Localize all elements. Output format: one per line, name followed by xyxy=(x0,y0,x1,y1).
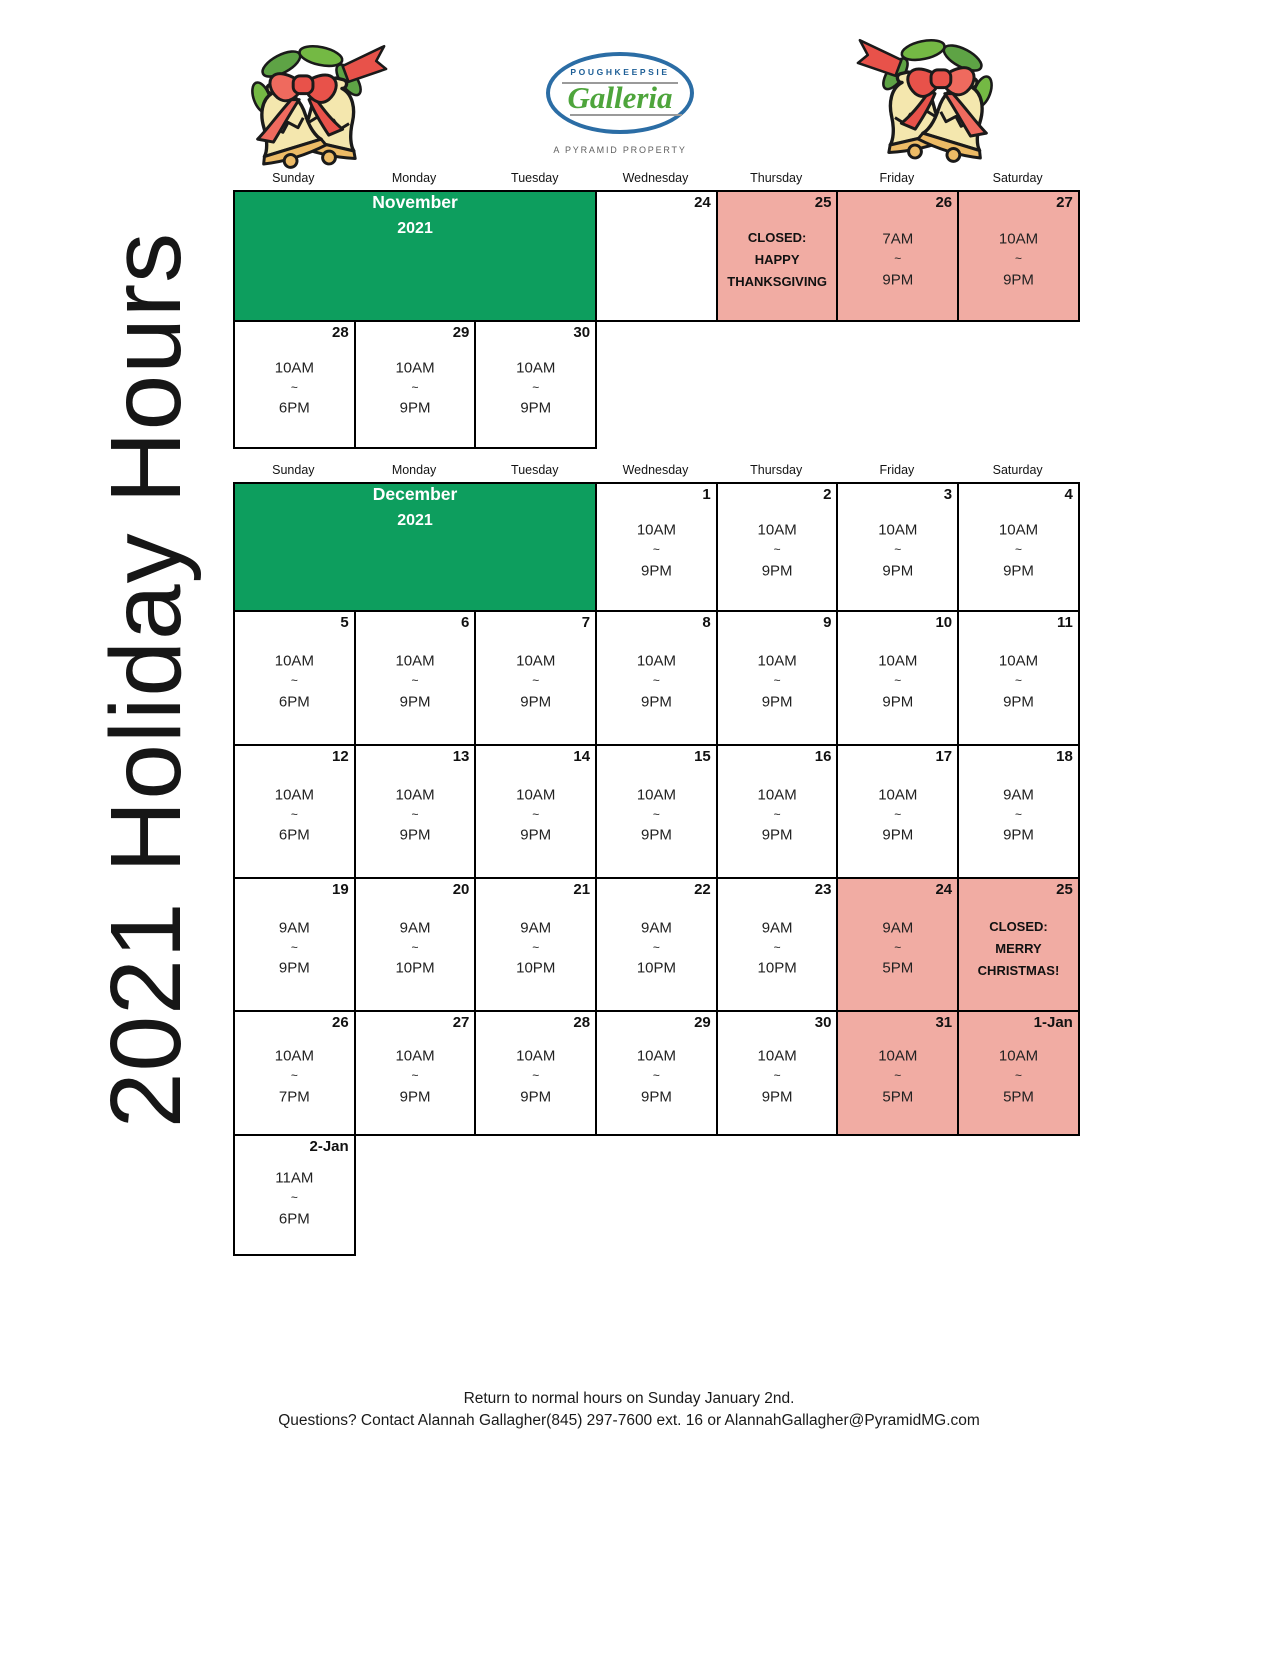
date-number: 21 xyxy=(573,881,590,898)
hours-separator: ~ xyxy=(894,1072,901,1082)
hours-line: 9PM xyxy=(400,828,431,843)
logo-poughkeepsie-text: POUGHKEEPSIE xyxy=(550,67,690,77)
date-number: 20 xyxy=(453,881,470,898)
hours-line: 10AM xyxy=(275,787,314,802)
hours-line: 9PM xyxy=(762,1089,793,1104)
hours-separator: ~ xyxy=(1015,810,1022,820)
hours-line: 10AM xyxy=(637,787,676,802)
hours-separator: ~ xyxy=(1015,546,1022,556)
hours-line: 10AM xyxy=(878,1049,917,1064)
hours-line: 10AM xyxy=(999,523,1038,538)
date-number: 16 xyxy=(815,748,832,765)
holiday-hours-flyer: 2021 Holiday Hours xyxy=(0,0,1280,1655)
hours-block: 7AM~9PM xyxy=(838,232,957,288)
hours-line: 10AM xyxy=(395,360,434,375)
hours-line: 10PM xyxy=(637,961,676,976)
hours-line: 10AM xyxy=(878,654,917,669)
hours-line: 9PM xyxy=(520,1089,551,1104)
hours-line: 11AM xyxy=(275,1171,313,1186)
hours-line: 9AM xyxy=(520,920,551,935)
weekday-label: Saturday xyxy=(957,463,1078,482)
poughkeepsie-galleria-logo: POUGHKEEPSIE Galleria A PYRAMID PROPERTY xyxy=(538,52,702,167)
hours-separator: ~ xyxy=(291,1072,298,1082)
hours-block: 10AM~9PM xyxy=(356,1049,475,1105)
hours-separator: ~ xyxy=(291,810,298,820)
hours-line: 9AM xyxy=(641,920,672,935)
hours-line: CHRISTMAS! xyxy=(978,963,1060,976)
weekday-label: Tuesday xyxy=(474,171,595,190)
hours-line: 7PM xyxy=(279,1089,310,1104)
calendar-week-row: December2021110AM~9PM210AM~9PM310AM~9PM4… xyxy=(234,483,1079,611)
hours-block: 9AM~10PM xyxy=(718,920,837,976)
date-number: 30 xyxy=(573,324,590,341)
date-number: 1-Jan xyxy=(1034,1014,1073,1031)
calendar-week-row: 2-Jan11AM~6PM xyxy=(234,1135,1079,1255)
hours-line: 6PM xyxy=(279,828,310,843)
weekday-label: Thursday xyxy=(716,171,837,190)
hours-line: CLOSED: xyxy=(748,231,807,244)
hours-block: 10AM~9PM xyxy=(597,654,716,710)
hours-block: 9AM~9PM xyxy=(235,920,354,976)
day-cell: 1010AM~9PM xyxy=(837,611,958,745)
hours-line: 9PM xyxy=(400,694,431,709)
hours-line: 6PM xyxy=(279,1211,310,1226)
date-number: 9 xyxy=(823,614,831,631)
hours-separator: ~ xyxy=(653,810,660,820)
hours-line: 9PM xyxy=(400,401,431,416)
footer-line-2: Questions? Contact Alannah Gallagher(845… xyxy=(0,1410,1258,1432)
hours-line: 9AM xyxy=(882,920,913,935)
hours-line: 9AM xyxy=(400,920,431,935)
hours-line: 7AM xyxy=(882,232,913,247)
hours-line: 9PM xyxy=(279,961,310,976)
hours-block: CLOSED:HAPPYTHANKSGIVING xyxy=(718,231,837,288)
hours-line: 10AM xyxy=(758,523,797,538)
date-number: 1 xyxy=(702,486,710,503)
date-number: 14 xyxy=(573,748,590,765)
hours-separator: ~ xyxy=(774,546,781,556)
day-cell: 229AM~10PM xyxy=(596,878,717,1011)
hours-block: 10AM~9PM xyxy=(838,523,957,579)
page-title: 2021 Holiday Hours xyxy=(78,220,214,1140)
hours-block: 9AM~10PM xyxy=(356,920,475,976)
weekday-header-row: SundayMondayTuesdayWednesdayThursdayFrid… xyxy=(233,171,1078,190)
hours-line: 10PM xyxy=(758,961,797,976)
hours-separator: ~ xyxy=(291,1194,298,1204)
hours-block: 10AM~9PM xyxy=(356,654,475,710)
hours-separator: ~ xyxy=(1015,1072,1022,1082)
hours-line: 6PM xyxy=(279,401,310,416)
date-number: 13 xyxy=(453,748,470,765)
hours-separator: ~ xyxy=(532,1072,539,1082)
hours-block: 10AM~9PM xyxy=(476,360,595,416)
hours-block: 11AM~6PM xyxy=(235,1171,354,1227)
hours-block: 9AM~10PM xyxy=(597,920,716,976)
day-cell: 710AM~9PM xyxy=(475,611,596,745)
hours-separator: ~ xyxy=(774,1072,781,1082)
hours-line: 10AM xyxy=(878,523,917,538)
hours-line: 10AM xyxy=(637,654,676,669)
hours-separator: ~ xyxy=(774,677,781,687)
hours-separator: ~ xyxy=(894,255,901,265)
day-cell: 199AM~9PM xyxy=(234,878,355,1011)
christmas-bells-graphic xyxy=(226,40,394,174)
hours-block: 10AM~9PM xyxy=(959,232,1078,288)
weekday-label: Sunday xyxy=(233,463,354,482)
hours-line: 9PM xyxy=(882,694,913,709)
hours-line: 10AM xyxy=(878,787,917,802)
hours-block: 10AM~7PM xyxy=(235,1049,354,1105)
weekday-label: Monday xyxy=(354,463,475,482)
date-number: 25 xyxy=(815,194,832,211)
november-calendar: SundayMondayTuesdayWednesdayThursdayFrid… xyxy=(233,171,1078,449)
date-number: 22 xyxy=(694,881,711,898)
hours-line: 10PM xyxy=(395,961,434,976)
date-number: 2 xyxy=(823,486,831,503)
month-name: December xyxy=(235,484,595,505)
day-cell: 25CLOSED:HAPPYTHANKSGIVING xyxy=(717,191,838,321)
hours-block: 10AM~9PM xyxy=(718,654,837,710)
hours-line: 10AM xyxy=(758,654,797,669)
day-cell: 2710AM~9PM xyxy=(355,1011,476,1135)
hours-block: 10AM~9PM xyxy=(959,654,1078,710)
date-number: 5 xyxy=(340,614,348,631)
hours-line: 10AM xyxy=(516,360,555,375)
day-cell: 2610AM~7PM xyxy=(234,1011,355,1135)
day-cell: 110AM~9PM xyxy=(596,483,717,611)
date-number: 28 xyxy=(332,324,349,341)
hours-block: 10AM~9PM xyxy=(476,787,595,843)
day-cell: 3110AM~5PM xyxy=(837,1011,958,1135)
date-number: 7 xyxy=(582,614,590,631)
hours-line: 9AM xyxy=(762,920,793,935)
day-cell: 1510AM~9PM xyxy=(596,745,717,878)
calendar-week-row: November20212425CLOSED:HAPPYTHANKSGIVING… xyxy=(234,191,1079,321)
hours-separator: ~ xyxy=(532,810,539,820)
hours-block: 9AM~9PM xyxy=(959,787,1078,843)
hours-line: 10AM xyxy=(395,1049,434,1064)
hours-separator: ~ xyxy=(894,546,901,556)
hours-separator: ~ xyxy=(412,943,419,953)
date-number: 15 xyxy=(694,748,711,765)
hours-line: 5PM xyxy=(882,1089,913,1104)
hours-block: 10AM~9PM xyxy=(838,787,957,843)
date-number: 18 xyxy=(1056,748,1073,765)
date-number: 26 xyxy=(935,194,952,211)
hours-block: 10AM~5PM xyxy=(838,1049,957,1105)
hours-line: 6PM xyxy=(279,694,310,709)
hours-line: 10AM xyxy=(395,787,434,802)
hours-line: 9PM xyxy=(520,828,551,843)
hours-line: 9PM xyxy=(1003,694,1034,709)
date-number: 3 xyxy=(944,486,952,503)
hours-block: 10AM~9PM xyxy=(356,360,475,416)
hours-separator: ~ xyxy=(412,383,419,393)
hours-block: 10AM~6PM xyxy=(235,360,354,416)
hours-line: CLOSED: xyxy=(989,919,1048,932)
hours-line: 9PM xyxy=(1003,563,1034,578)
day-cell: 2910AM~9PM xyxy=(355,321,476,448)
hours-separator: ~ xyxy=(774,943,781,953)
hours-line: 9PM xyxy=(882,272,913,287)
calendar-week-row: 199AM~9PM209AM~10PM219AM~10PM229AM~10PM2… xyxy=(234,878,1079,1011)
day-cell: 2910AM~9PM xyxy=(596,1011,717,1135)
hours-separator: ~ xyxy=(532,383,539,393)
hours-separator: ~ xyxy=(653,1072,660,1082)
date-number: 4 xyxy=(1064,486,1072,503)
hours-line: 9PM xyxy=(400,1089,431,1104)
date-number: 24 xyxy=(935,881,952,898)
hours-block: 9AM~5PM xyxy=(838,920,957,976)
hours-block: 10AM~9PM xyxy=(838,654,957,710)
day-cell: 2810AM~9PM xyxy=(475,1011,596,1135)
date-number: 12 xyxy=(332,748,349,765)
date-number: 29 xyxy=(694,1014,711,1031)
hours-line: 9PM xyxy=(520,401,551,416)
day-cell: 1410AM~9PM xyxy=(475,745,596,878)
hours-separator: ~ xyxy=(653,943,660,953)
date-number: 31 xyxy=(935,1014,952,1031)
hours-line: 9PM xyxy=(762,694,793,709)
day-cell: 3010AM~9PM xyxy=(717,1011,838,1135)
hours-line: 9PM xyxy=(641,563,672,578)
day-cell: 2-Jan11AM~6PM xyxy=(234,1135,355,1255)
hours-line: 9PM xyxy=(1003,272,1034,287)
hours-line: HAPPY xyxy=(755,253,800,266)
hours-separator: ~ xyxy=(894,677,901,687)
hours-separator: ~ xyxy=(1015,255,1022,265)
hours-line: 10AM xyxy=(516,1049,555,1064)
date-number: 28 xyxy=(573,1014,590,1031)
day-cell: 310AM~9PM xyxy=(837,483,958,611)
hours-line: 10AM xyxy=(275,654,314,669)
date-number: 26 xyxy=(332,1014,349,1031)
day-cell: 25CLOSED:MERRYCHRISTMAS! xyxy=(958,878,1079,1011)
weekday-header-row: SundayMondayTuesdayWednesdayThursdayFrid… xyxy=(233,463,1078,482)
day-cell: 189AM~9PM xyxy=(958,745,1079,878)
date-number: 29 xyxy=(453,324,470,341)
hours-line: THANKSGIVING xyxy=(727,275,827,288)
hours-block: 10AM~9PM xyxy=(718,523,837,579)
date-number: 10 xyxy=(935,614,952,631)
hours-line: 9PM xyxy=(762,563,793,578)
day-cell: 1610AM~9PM xyxy=(717,745,838,878)
month-name: November xyxy=(235,192,595,213)
hours-line: 9PM xyxy=(1003,828,1034,843)
hours-separator: ~ xyxy=(532,943,539,953)
weekday-label: Wednesday xyxy=(595,171,716,190)
footer-line-1: Return to normal hours on Sunday January… xyxy=(0,1388,1258,1410)
hours-line: 9PM xyxy=(641,1089,672,1104)
date-number: 19 xyxy=(332,881,349,898)
hours-line: 10AM xyxy=(275,360,314,375)
hours-separator: ~ xyxy=(412,810,419,820)
hours-block: 10AM~6PM xyxy=(235,654,354,710)
weekday-label: Thursday xyxy=(716,463,837,482)
day-cell: 1210AM~6PM xyxy=(234,745,355,878)
hours-separator: ~ xyxy=(894,943,901,953)
day-cell: 1110AM~9PM xyxy=(958,611,1079,745)
hours-separator: ~ xyxy=(412,677,419,687)
day-cell: 2810AM~6PM xyxy=(234,321,355,448)
hours-separator: ~ xyxy=(291,677,298,687)
day-cell: 510AM~6PM xyxy=(234,611,355,745)
date-number: 24 xyxy=(694,194,711,211)
hours-line: 9PM xyxy=(641,694,672,709)
hours-separator: ~ xyxy=(1015,677,1022,687)
weekday-label: Tuesday xyxy=(474,463,595,482)
hours-separator: ~ xyxy=(894,810,901,820)
weekday-label: Friday xyxy=(837,171,958,190)
day-cell: 249AM~5PM xyxy=(837,878,958,1011)
date-number: 27 xyxy=(453,1014,470,1031)
hours-separator: ~ xyxy=(412,1072,419,1082)
hours-line: MERRY xyxy=(995,941,1041,954)
hours-separator: ~ xyxy=(653,546,660,556)
logo-galleria-text: Galleria xyxy=(550,80,690,116)
december-table: December2021110AM~9PM210AM~9PM310AM~9PM4… xyxy=(233,482,1080,1256)
hours-line: 9AM xyxy=(279,920,310,935)
date-number: 11 xyxy=(1057,614,1073,631)
calendar-week-row: 510AM~6PM610AM~9PM710AM~9PM810AM~9PM910A… xyxy=(234,611,1079,745)
calendar-week-row: 2810AM~6PM2910AM~9PM3010AM~9PM xyxy=(234,321,1079,448)
hours-line: 10PM xyxy=(516,961,555,976)
hours-block: 10AM~5PM xyxy=(959,1049,1078,1105)
hours-block: 10AM~9PM xyxy=(718,1049,837,1105)
hours-block: 10AM~9PM xyxy=(597,523,716,579)
date-number: 25 xyxy=(1056,881,1073,898)
weekday-label: Wednesday xyxy=(595,463,716,482)
hours-separator: ~ xyxy=(291,943,298,953)
day-cell: 210AM~9PM xyxy=(717,483,838,611)
hours-block: 10AM~9PM xyxy=(718,787,837,843)
hours-line: 9PM xyxy=(762,828,793,843)
december-calendar: SundayMondayTuesdayWednesdayThursdayFrid… xyxy=(233,463,1078,1256)
hours-line: 10AM xyxy=(395,654,434,669)
month-year: 2021 xyxy=(235,512,595,530)
hours-line: 10AM xyxy=(637,523,676,538)
hours-block: 10AM~9PM xyxy=(597,1049,716,1105)
hours-block: CLOSED:MERRYCHRISTMAS! xyxy=(959,919,1078,976)
hours-line: 5PM xyxy=(1003,1089,1034,1104)
christmas-bells-icon xyxy=(850,34,1018,168)
footer: Return to normal hours on Sunday January… xyxy=(0,1388,1258,1432)
calendar-week-row: 2610AM~7PM2710AM~9PM2810AM~9PM2910AM~9PM… xyxy=(234,1011,1079,1135)
hours-line: 10AM xyxy=(516,787,555,802)
hours-line: 10AM xyxy=(516,654,555,669)
logo-rule-bottom xyxy=(570,114,682,116)
hours-block: 10AM~6PM xyxy=(235,787,354,843)
hours-line: 10AM xyxy=(275,1049,314,1064)
hours-block: 10AM~9PM xyxy=(356,787,475,843)
hours-block: 10AM~9PM xyxy=(476,654,595,710)
hours-block: 10AM~9PM xyxy=(476,1049,595,1105)
day-cell: 1-Jan10AM~5PM xyxy=(958,1011,1079,1135)
weekday-label: Monday xyxy=(354,171,475,190)
hours-line: 9PM xyxy=(520,694,551,709)
hours-line: 9PM xyxy=(641,828,672,843)
month-title-cell: November2021 xyxy=(234,191,596,321)
date-number: 8 xyxy=(702,614,710,631)
hours-line: 10AM xyxy=(999,654,1038,669)
day-cell: 2710AM~9PM xyxy=(958,191,1079,321)
november-table: November20212425CLOSED:HAPPYTHANKSGIVING… xyxy=(233,190,1080,449)
day-cell: 1710AM~9PM xyxy=(837,745,958,878)
month-title-cell: December2021 xyxy=(234,483,596,611)
day-cell: 410AM~9PM xyxy=(958,483,1079,611)
christmas-bells-graphic xyxy=(850,34,1018,168)
hours-block: 9AM~10PM xyxy=(476,920,595,976)
date-number: 23 xyxy=(815,881,832,898)
hours-block: 10AM~9PM xyxy=(959,523,1078,579)
day-cell: 610AM~9PM xyxy=(355,611,476,745)
day-cell: 209AM~10PM xyxy=(355,878,476,1011)
weekday-label: Saturday xyxy=(957,171,1078,190)
weekday-label: Sunday xyxy=(233,171,354,190)
day-cell: 219AM~10PM xyxy=(475,878,596,1011)
weekday-label: Friday xyxy=(837,463,958,482)
hours-line: 10AM xyxy=(637,1049,676,1064)
day-cell: 267AM~9PM xyxy=(837,191,958,321)
hours-separator: ~ xyxy=(532,677,539,687)
date-number: 30 xyxy=(815,1014,832,1031)
date-number: 6 xyxy=(461,614,469,631)
hours-separator: ~ xyxy=(653,677,660,687)
calendar-week-row: 1210AM~6PM1310AM~9PM1410AM~9PM1510AM~9PM… xyxy=(234,745,1079,878)
hours-line: 9AM xyxy=(1003,787,1034,802)
christmas-bells-icon xyxy=(226,40,394,174)
hours-separator: ~ xyxy=(774,810,781,820)
date-number: 17 xyxy=(935,748,952,765)
hours-line: 10AM xyxy=(999,1049,1038,1064)
hours-line: 9PM xyxy=(882,828,913,843)
day-cell: 239AM~10PM xyxy=(717,878,838,1011)
logo-oval: POUGHKEEPSIE Galleria xyxy=(546,52,694,134)
hours-line: 9PM xyxy=(882,563,913,578)
day-cell: 1310AM~9PM xyxy=(355,745,476,878)
day-cell: 910AM~9PM xyxy=(717,611,838,745)
day-cell: 24 xyxy=(596,191,717,321)
day-cell: 3010AM~9PM xyxy=(475,321,596,448)
hours-line: 10AM xyxy=(758,1049,797,1064)
hours-separator: ~ xyxy=(291,383,298,393)
date-number: 27 xyxy=(1056,194,1073,211)
hours-line: 10AM xyxy=(758,787,797,802)
day-cell: 810AM~9PM xyxy=(596,611,717,745)
hours-line: 5PM xyxy=(882,961,913,976)
hours-line: 10AM xyxy=(999,232,1038,247)
date-number: 2-Jan xyxy=(310,1138,349,1155)
logo-subtitle: A PYRAMID PROPERTY xyxy=(530,145,710,155)
month-year: 2021 xyxy=(235,220,595,238)
hours-block: 10AM~9PM xyxy=(597,787,716,843)
